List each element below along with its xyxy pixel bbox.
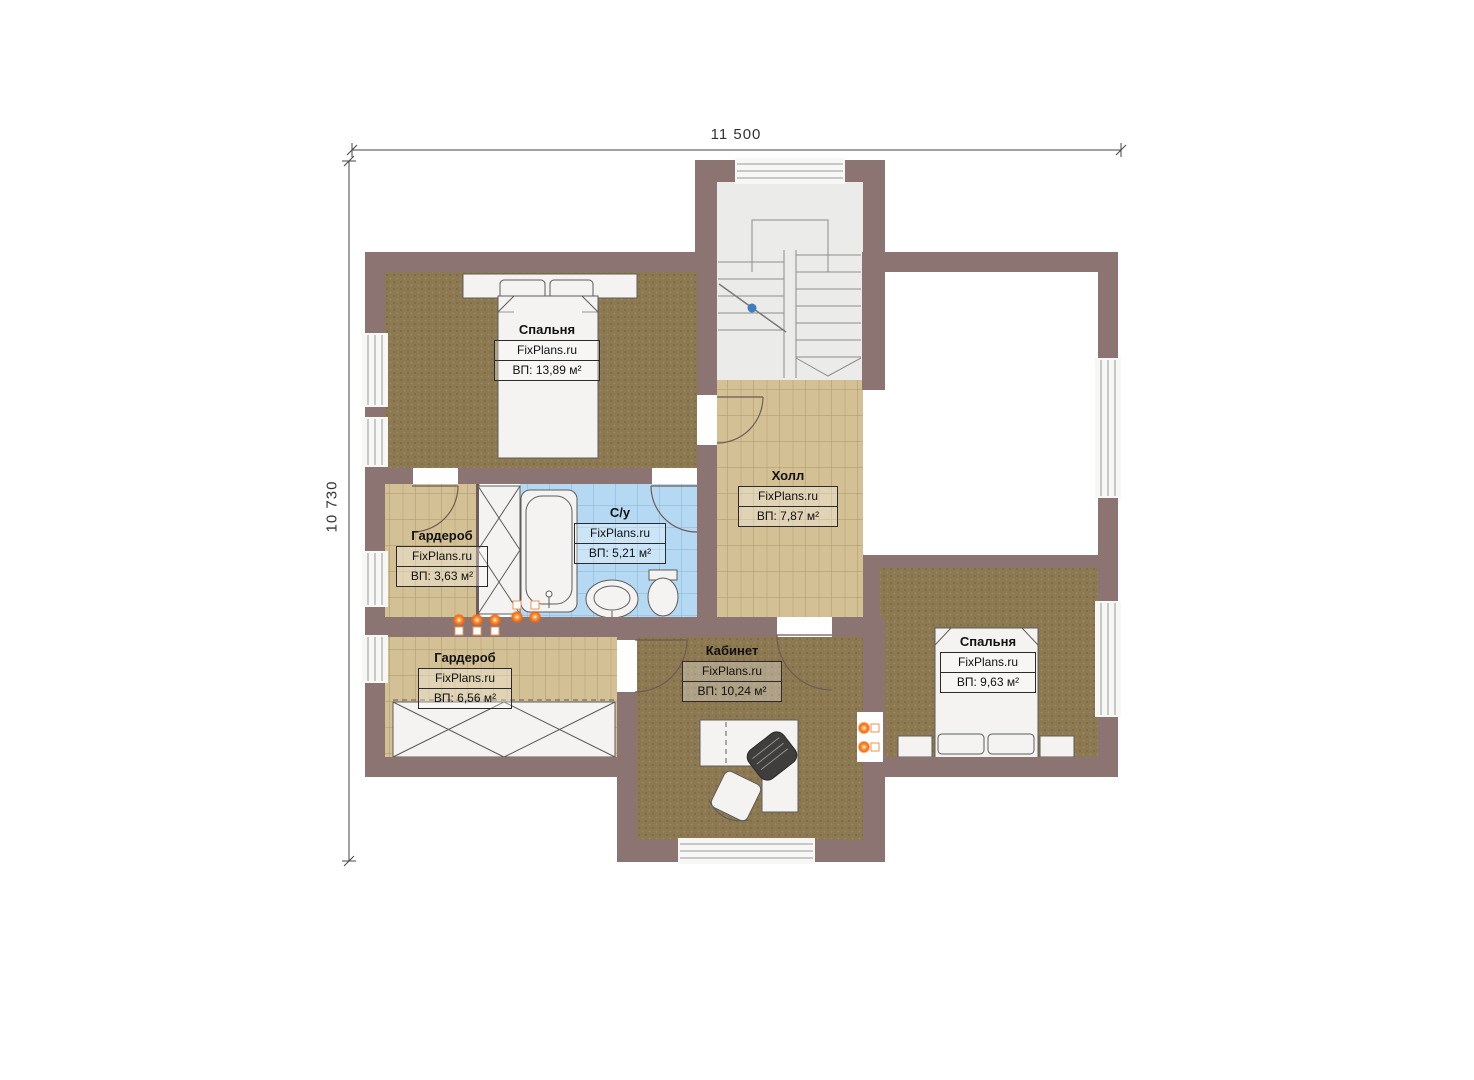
window-left-3: [362, 551, 388, 607]
dimension-line-top: [347, 143, 1126, 157]
window-left-1: [362, 333, 388, 407]
room-name: Спальня: [940, 634, 1036, 649]
room-area: ВП: 9,63 м²: [941, 672, 1035, 692]
stair-marker-dot: [748, 304, 757, 313]
sink: [586, 580, 638, 619]
room-brand: FixPlans.ru: [397, 547, 487, 566]
room-label-wardrobe-big: Гардероб FixPlans.ru ВП: 6,56 м²: [418, 650, 512, 709]
dimension-height-label: 10 730: [324, 471, 341, 543]
room-info-box: FixPlans.ru ВП: 9,63 м²: [940, 652, 1036, 693]
dimension-width-label: 11 500: [700, 126, 772, 143]
room-name: Холл: [738, 468, 838, 483]
room-area: ВП: 5,21 м²: [575, 543, 665, 563]
room-info-box: FixPlans.ru ВП: 13,89 м²: [494, 340, 600, 381]
stairwell-floor: [717, 182, 863, 380]
room-brand: FixPlans.ru: [495, 341, 599, 360]
room-info-box: FixPlans.ru ВП: 3,63 м²: [396, 546, 488, 587]
window-left-4: [362, 635, 388, 683]
room-label-bathroom: С/у FixPlans.ru ВП: 5,21 м²: [574, 505, 666, 564]
room-brand: FixPlans.ru: [941, 653, 1035, 672]
room-area: ВП: 7,87 м²: [739, 506, 837, 526]
room-name: Гардероб: [396, 528, 488, 543]
floor-plan-page: 11 500 10 730 Спальня FixPlans.ru ВП: 13…: [0, 0, 1474, 1080]
room-info-box: FixPlans.ru ВП: 10,24 м²: [682, 661, 782, 702]
dimension-line-left: [342, 156, 356, 866]
room-label-bedroom-2: Спальня FixPlans.ru ВП: 9,63 м²: [940, 634, 1036, 693]
room-info-box: FixPlans.ru ВП: 5,21 м²: [574, 523, 666, 564]
room-label-wardrobe-small: Гардероб FixPlans.ru ВП: 3,63 м²: [396, 528, 488, 587]
window-right-2: [1095, 601, 1121, 717]
room-brand: FixPlans.ru: [739, 487, 837, 506]
room-label-office: Кабинет FixPlans.ru ВП: 10,24 м²: [682, 643, 782, 702]
room-info-box: FixPlans.ru ВП: 6,56 м²: [418, 668, 512, 709]
window-left-2: [362, 417, 388, 467]
room-brand: FixPlans.ru: [575, 524, 665, 543]
toilet: [648, 570, 678, 616]
room-name: Гардероб: [418, 650, 512, 665]
room-area: ВП: 3,63 м²: [397, 566, 487, 586]
room-area: ВП: 13,89 м²: [495, 360, 599, 380]
room-name: С/у: [574, 505, 666, 520]
room-brand: FixPlans.ru: [419, 669, 511, 688]
open-room-floor: [863, 272, 1098, 568]
room-name: Кабинет: [682, 643, 782, 658]
room-area: ВП: 6,56 м²: [419, 688, 511, 708]
window-office-bottom: [678, 838, 815, 864]
window-right-1: [1095, 358, 1121, 498]
room-brand: FixPlans.ru: [683, 662, 781, 681]
window-stair-top: [735, 158, 845, 184]
room-label-bedroom-1: Спальня FixPlans.ru ВП: 13,89 м²: [494, 322, 600, 381]
radiator-niche: [857, 712, 883, 762]
bathtub: [521, 490, 577, 612]
floor-plan-drawing: [0, 0, 1474, 1080]
room-area: ВП: 10,24 м²: [683, 681, 781, 701]
room-info-box: FixPlans.ru ВП: 7,87 м²: [738, 486, 838, 527]
room-label-hall: Холл FixPlans.ru ВП: 7,87 м²: [738, 468, 838, 527]
room-name: Спальня: [494, 322, 600, 337]
